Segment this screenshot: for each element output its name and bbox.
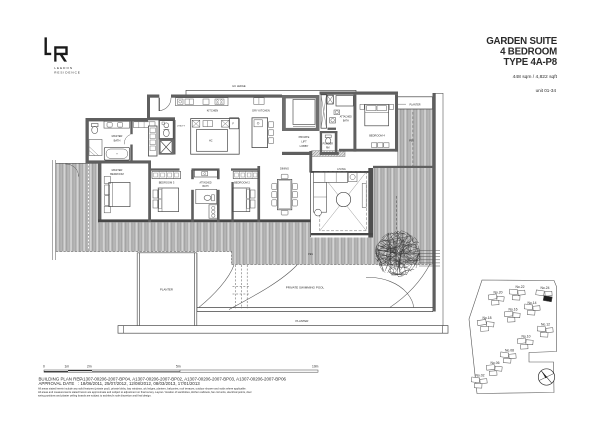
svg-text:No.16: No.16 xyxy=(508,308,517,312)
svg-text:No.02: No.02 xyxy=(475,374,484,378)
svg-text:PRIVATE: PRIVATE xyxy=(299,135,310,139)
svg-text:HC LEDGE: HC LEDGE xyxy=(232,84,246,88)
svg-text:MASTER: MASTER xyxy=(112,168,123,172)
svg-text:BEDROOM: BEDROOM xyxy=(110,172,123,176)
svg-text:HC: HC xyxy=(209,140,213,143)
svg-text:No.06: No.06 xyxy=(490,361,499,365)
svg-text:APPROVAL DATE: APPROVAL DATE xyxy=(39,381,75,386)
svg-text:PLANTER: PLANTER xyxy=(409,104,420,107)
svg-text:PLANTER: PLANTER xyxy=(160,287,173,291)
svg-text:0: 0 xyxy=(43,364,45,368)
svg-text:All areas and measurements sta: All areas and measurements stated herein… xyxy=(38,390,252,394)
svg-text:448 sqm / 4,822 sqft: 448 sqm / 4,822 sqft xyxy=(513,74,558,80)
svg-text:BEDROOM 4: BEDROOM 4 xyxy=(369,134,385,138)
svg-text:DINING: DINING xyxy=(280,167,289,171)
svg-text:No.14: No.14 xyxy=(527,301,536,305)
svg-text:No.20: No.20 xyxy=(493,291,502,295)
svg-text:No.12: No.12 xyxy=(541,323,550,327)
svg-text:ATTACHED: ATTACHED xyxy=(340,116,352,119)
svg-text:No.22: No.22 xyxy=(515,285,524,289)
svg-text:No.24: No.24 xyxy=(540,286,549,290)
svg-text:DRY KITCHEN: DRY KITCHEN xyxy=(252,109,270,113)
svg-text:TYPE 4A-P8: TYPE 4A-P8 xyxy=(504,57,558,68)
svg-text:GARDEN SUITE: GARDEN SUITE xyxy=(486,36,558,47)
svg-text:PES: PES xyxy=(409,140,414,143)
svg-text:4 BEDROOM: 4 BEDROOM xyxy=(500,47,557,58)
svg-text:10m: 10m xyxy=(312,364,319,368)
svg-text:PRIVATE SWIMMING POOL: PRIVATE SWIMMING POOL xyxy=(286,285,325,289)
svg-text:5m: 5m xyxy=(176,364,181,368)
svg-text:KITCHEN: KITCHEN xyxy=(207,109,219,113)
svg-text:swing positions and plaster ce: swing positions and plaster ceiling boar… xyxy=(38,394,152,398)
svg-text:unit 01-34: unit 01-34 xyxy=(536,88,557,93)
svg-text:BEDROOM 2: BEDROOM 2 xyxy=(234,181,250,185)
svg-text:LIFT: LIFT xyxy=(301,139,307,143)
svg-text:No.08: No.08 xyxy=(505,349,514,353)
svg-text:RM: RM xyxy=(326,147,330,149)
svg-text:ATTACHED: ATTACHED xyxy=(199,181,211,184)
svg-text:PLANTER: PLANTER xyxy=(296,319,309,323)
svg-text:1m: 1m xyxy=(65,364,70,368)
svg-text:POWDER: POWDER xyxy=(323,144,334,146)
svg-text:LOBBY: LOBBY xyxy=(300,144,309,148)
svg-text:All areas stated herein includ: All areas stated herein include any soli… xyxy=(38,386,247,390)
svg-text:BEDROOM 3: BEDROOM 3 xyxy=(159,181,175,185)
svg-text:No.18: No.18 xyxy=(482,316,491,320)
svg-text:BATH: BATH xyxy=(114,138,121,142)
svg-text:LIVING: LIVING xyxy=(337,167,346,171)
svg-text:RESIDENCE: RESIDENCE xyxy=(54,70,81,74)
svg-text:BATH: BATH xyxy=(343,119,349,122)
svg-text:: 18/06/2011, 25/07/2012, 12/0: : 18/06/2011, 25/07/2012, 12/08/2012, 08… xyxy=(78,381,200,386)
svg-text:No.10: No.10 xyxy=(521,335,530,339)
svg-text:BATH: BATH xyxy=(203,185,209,188)
svg-text:PES: PES xyxy=(308,253,313,256)
svg-text:UTILITY: UTILITY xyxy=(177,125,186,127)
svg-text:MASTER: MASTER xyxy=(112,134,123,138)
svg-text:2m: 2m xyxy=(87,364,92,368)
